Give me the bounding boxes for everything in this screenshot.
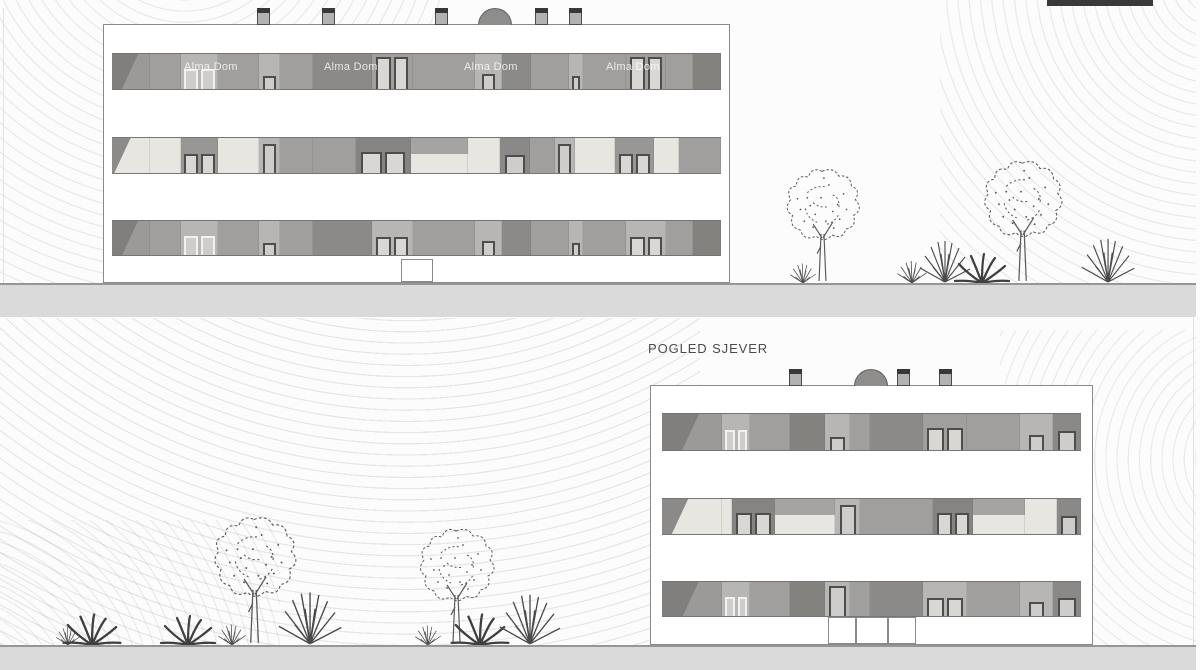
window	[947, 428, 963, 450]
facade-segment	[313, 138, 356, 173]
facade-segment	[666, 54, 693, 89]
chimney-flue	[322, 13, 335, 25]
facade-segment	[693, 221, 721, 255]
roof-dome	[478, 8, 512, 25]
facade-segment	[1053, 414, 1081, 450]
view-label-north: POGLED SJEVER	[648, 341, 768, 356]
entrance-door	[856, 617, 888, 644]
window	[630, 237, 644, 255]
facade-segment	[662, 582, 722, 616]
facade-segment	[259, 138, 280, 173]
facade-segment	[835, 499, 860, 534]
facade-segment	[933, 499, 973, 534]
window-pair	[736, 513, 770, 534]
window-pair	[376, 57, 409, 89]
facade-segment	[259, 54, 280, 89]
facade-segment	[775, 499, 835, 534]
window	[947, 598, 963, 616]
facade-segment	[923, 582, 967, 616]
facade-segment	[1020, 414, 1053, 450]
window	[184, 236, 198, 255]
facade-segment	[662, 499, 722, 534]
window-pair	[937, 513, 969, 534]
facade-segment	[850, 582, 870, 616]
facade-segment	[531, 54, 569, 89]
facade-segment	[280, 54, 313, 89]
facade-segment	[218, 138, 259, 173]
watermark-text: Alma Dom	[606, 61, 660, 73]
ground-strip-top	[0, 283, 1196, 317]
facade-segment	[181, 138, 219, 173]
facade-segment	[413, 221, 476, 255]
watermark-text: Alma Dom	[184, 61, 238, 73]
window	[201, 236, 215, 255]
window	[572, 243, 580, 255]
chimney	[939, 369, 952, 386]
window-pair	[630, 237, 662, 255]
facade-segment	[732, 499, 775, 534]
facade-segment	[825, 582, 850, 616]
chimney	[535, 8, 548, 25]
facade-segment	[825, 414, 850, 450]
chimney-flue	[257, 13, 270, 25]
facade-segment	[280, 221, 313, 255]
chimney	[789, 369, 802, 386]
window-pair	[619, 154, 651, 173]
facade-segment	[356, 138, 411, 173]
chimney	[435, 8, 448, 25]
facade-segment	[583, 221, 627, 255]
ground-strip-bottom	[0, 645, 1196, 670]
window-pair	[184, 236, 214, 255]
chimney	[257, 8, 270, 25]
window	[955, 513, 970, 534]
facade-segment	[372, 221, 413, 255]
chimney-flue	[789, 374, 802, 386]
facade-segment	[372, 54, 413, 89]
window	[1058, 431, 1076, 450]
elevation-sheet: Alma DomAlma DomAlma DomAlma Dom	[0, 0, 1200, 670]
facade-segment	[666, 221, 693, 255]
window	[1061, 516, 1076, 534]
facade-segment	[967, 414, 1020, 450]
facade-segment	[411, 138, 469, 173]
chimney-flue	[435, 13, 448, 25]
facade-segment	[790, 582, 825, 616]
facade-segment	[722, 582, 750, 616]
window	[505, 155, 524, 173]
window	[482, 241, 495, 255]
window	[830, 437, 845, 450]
window	[937, 513, 952, 534]
window	[263, 243, 276, 255]
facade-segment	[654, 138, 679, 173]
facade-segment	[150, 54, 181, 89]
chimney	[569, 8, 582, 25]
facade-segment	[870, 582, 923, 616]
chimney	[322, 8, 335, 25]
window	[619, 154, 633, 173]
facade-segment	[750, 582, 790, 616]
window	[738, 430, 748, 450]
window-pair	[376, 237, 409, 255]
chimney-flue	[535, 13, 548, 25]
facade-segment	[850, 414, 870, 450]
facade-segment	[259, 221, 280, 255]
facade-segment	[569, 221, 583, 255]
window-pair	[361, 152, 405, 173]
facade-segment	[280, 138, 313, 173]
south-elevation-building: Alma DomAlma DomAlma DomAlma Dom	[103, 24, 730, 283]
floor-band	[662, 413, 1081, 451]
entrance-door	[828, 617, 856, 644]
facade-segment	[860, 499, 933, 534]
chimney-flue	[569, 13, 582, 25]
window-pair	[184, 154, 214, 173]
facade-segment	[150, 221, 181, 255]
roof-dome	[854, 369, 888, 386]
watermark-text: Alma Dom	[464, 61, 518, 73]
window-pair	[927, 428, 962, 450]
facade-segment	[1025, 499, 1057, 534]
facade-segment	[967, 582, 1020, 616]
facade-segment	[575, 138, 615, 173]
floor-band	[112, 220, 721, 256]
window-pair	[725, 430, 747, 450]
window	[394, 57, 409, 89]
facade-segment	[750, 414, 790, 450]
facade-segment	[313, 221, 372, 255]
facade-segment	[693, 54, 721, 89]
window	[648, 237, 662, 255]
facade-segment	[112, 221, 150, 255]
chimney-flue	[939, 374, 952, 386]
window	[1029, 435, 1045, 450]
facade-segment	[181, 221, 219, 255]
facade-segment	[615, 138, 655, 173]
floor-band	[662, 498, 1081, 535]
entrance-door	[888, 617, 916, 644]
chimney	[897, 369, 910, 386]
window	[725, 597, 735, 616]
facade-segment	[500, 138, 530, 173]
window	[927, 598, 943, 616]
facade-segment	[790, 414, 825, 450]
facade-segment	[475, 221, 502, 255]
facade-segment	[870, 414, 923, 450]
chimney-flue	[897, 374, 910, 386]
facade-segment	[530, 138, 555, 173]
window-pair	[927, 598, 962, 616]
facade-segment	[531, 221, 569, 255]
facade-segment	[1057, 499, 1081, 534]
facade-segment	[626, 221, 666, 255]
window	[184, 154, 198, 173]
facade-segment	[569, 54, 583, 89]
window	[1029, 602, 1045, 616]
facade-segment	[555, 138, 575, 173]
cropped-ui-bar[interactable]	[1047, 0, 1153, 6]
window	[840, 505, 856, 534]
window	[755, 513, 771, 534]
facade-segment	[468, 138, 500, 173]
window	[1058, 598, 1076, 616]
facade-segment	[112, 138, 150, 173]
window	[361, 152, 381, 173]
facade-segment	[923, 414, 967, 450]
window	[263, 144, 276, 173]
window	[572, 76, 580, 89]
window	[201, 154, 215, 173]
facade-segment	[722, 414, 750, 450]
facade-segment	[150, 138, 181, 173]
north-elevation-building	[650, 385, 1093, 645]
watermark-text: Alma Dom	[324, 61, 378, 73]
window	[376, 237, 391, 255]
floor-band	[112, 137, 721, 174]
facade-segment	[218, 221, 259, 255]
entrance-door	[401, 259, 433, 282]
facade-segment	[1020, 582, 1053, 616]
window	[725, 430, 735, 450]
window	[376, 57, 391, 89]
window	[263, 76, 276, 89]
window-pair	[725, 597, 747, 616]
window	[636, 154, 650, 173]
window	[829, 586, 847, 616]
buildings-layer: Alma DomAlma DomAlma DomAlma Dom	[0, 0, 1200, 670]
window	[394, 237, 409, 255]
window	[736, 513, 752, 534]
facade-segment	[679, 138, 721, 173]
facade-segment	[722, 499, 732, 534]
facade-segment	[502, 221, 531, 255]
facade-segment	[662, 414, 722, 450]
window	[385, 152, 405, 173]
facade-segment	[973, 499, 1025, 534]
window	[558, 144, 571, 173]
floor-band	[662, 581, 1081, 617]
window	[738, 597, 748, 616]
facade-segment	[1053, 582, 1081, 616]
window	[482, 74, 495, 89]
window	[927, 428, 943, 450]
facade-segment	[112, 54, 150, 89]
